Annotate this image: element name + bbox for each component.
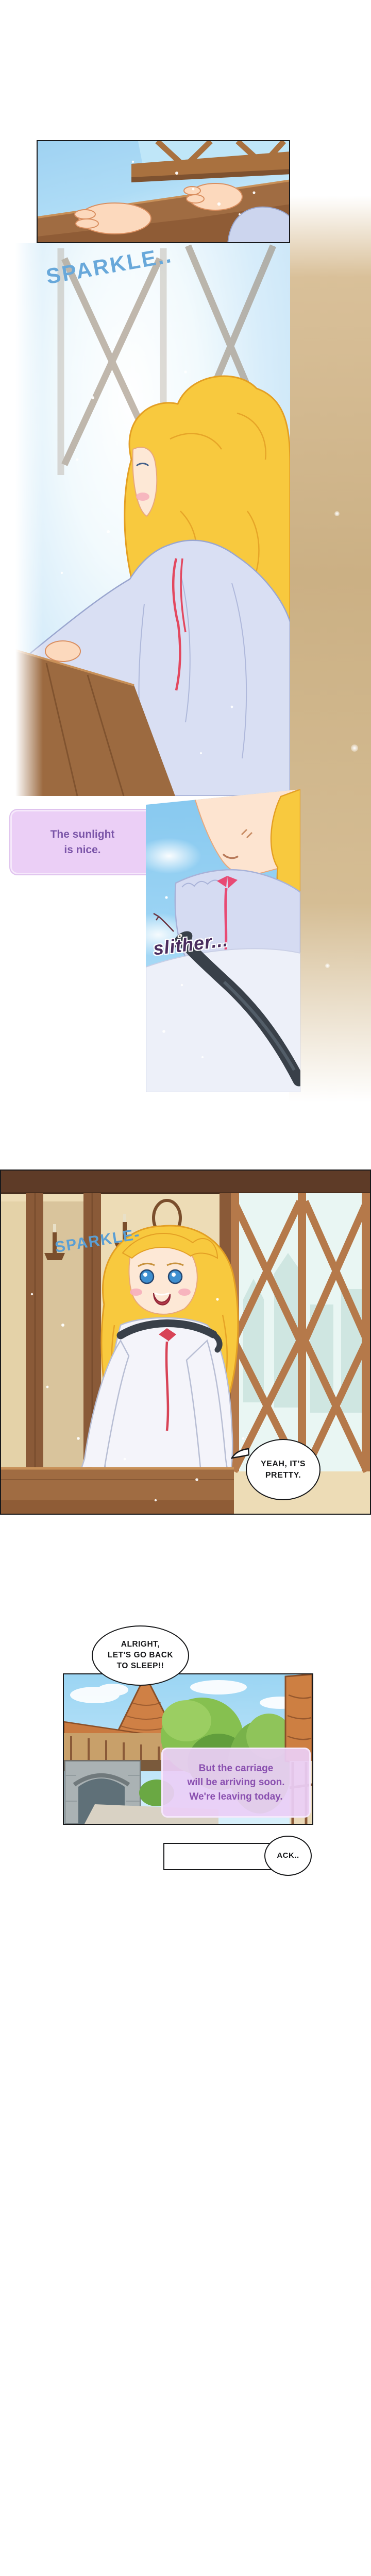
bubble-text: PRETTY. (265, 1470, 301, 1481)
blush (178, 1289, 191, 1296)
speech-bubble-sleep: ALRIGHT, LET'S GO BACK TO SLEEP!! (92, 1625, 189, 1686)
speech-bubble-ack: ACK.. (264, 1836, 312, 1876)
narration-text: will be arriving soon. (188, 1775, 285, 1790)
sparkle-dot-icon (325, 963, 330, 968)
bubble-text: The sunlight (50, 827, 115, 842)
bubble-text: ALRIGHT, (121, 1639, 160, 1650)
pajama-body (146, 948, 300, 1092)
speech-bubble-pretty: YEAH, IT'S PRETTY. (246, 1439, 321, 1500)
tan-margin-strip (289, 196, 371, 1103)
panel-girl-at-window (15, 243, 290, 796)
eye-left (140, 1270, 154, 1283)
window-hands-art (38, 141, 290, 243)
blush (130, 1289, 142, 1296)
webtoon-page: SPARKLE.. The sunlight is nice. (0, 0, 371, 2576)
speech-bubble-sunlight: The sunlight is nice. (9, 809, 156, 875)
narration-text: But the carriage (199, 1761, 274, 1776)
bubble-text: TO SLEEP!! (117, 1661, 164, 1672)
bubble-text: LET'S GO BACK (108, 1650, 173, 1661)
bubble-text: YEAH, IT'S (261, 1459, 306, 1470)
panel-window-hands (37, 140, 290, 243)
bubble-text: is nice. (64, 842, 100, 857)
sparkle-dot-icon (351, 744, 358, 752)
eye-right (168, 1270, 182, 1283)
left-fade (15, 243, 290, 796)
narration-text: We're leaving today. (189, 1790, 282, 1804)
sparkle-dot-icon (334, 511, 340, 516)
title-flourish-icon (165, 2574, 211, 2576)
bubble-tail-pretty (231, 1447, 249, 1460)
narration-box-carriage: But the carriage will be arriving soon. … (161, 1748, 311, 1818)
bubble-text: ACK.. (277, 1851, 299, 1861)
